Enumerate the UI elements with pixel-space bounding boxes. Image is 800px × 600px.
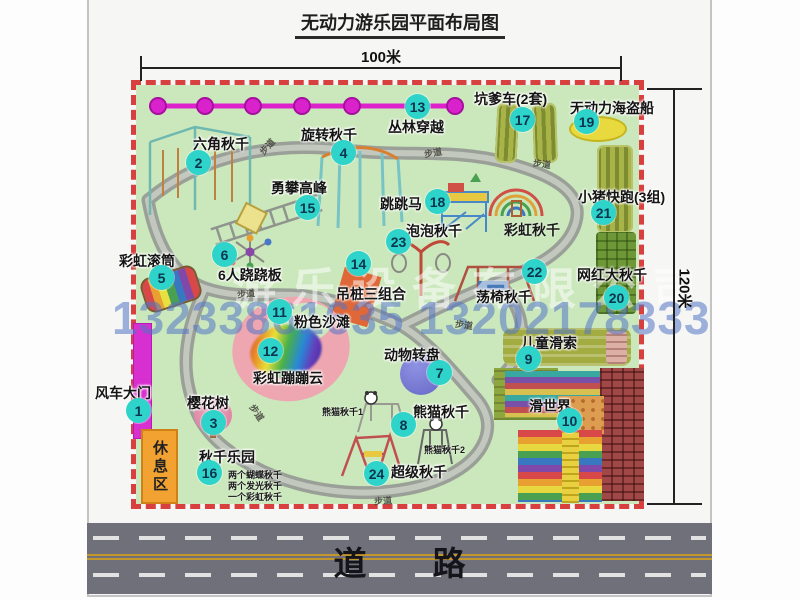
attraction-badge-17: 17 <box>510 107 535 132</box>
attraction-label-22: 荡椅秋千 <box>476 287 532 307</box>
attraction-badge-7: 7 <box>427 360 452 385</box>
slide-world-rainbow-slide <box>518 430 602 502</box>
extra-label-6: 一个彩虹秋千 <box>228 490 282 503</box>
attraction-badge-8: 8 <box>391 412 416 437</box>
attraction-badge-21: 21 <box>591 200 616 225</box>
dimension-label-height: 120米 <box>675 259 696 319</box>
attraction-label-21: 小猪快跑(3组) <box>578 187 665 207</box>
attraction-badge-22: 22 <box>522 259 547 284</box>
attraction-label-14: 吊桩三组合 <box>336 284 406 304</box>
attraction-badge-12: 12 <box>258 338 283 363</box>
attraction-badge-15: 15 <box>295 195 320 220</box>
kengdie-car-strip-2 <box>532 103 558 164</box>
park-layout-page: 无动力游乐园平面布局图 100米 120米 <box>0 0 800 600</box>
attraction-label-18: 跳跳马 <box>380 194 422 214</box>
slide-world-ladder <box>562 432 579 503</box>
attraction-label-24: 超级秋千 <box>391 462 447 482</box>
attraction-label-23: 泡泡秋千 <box>406 221 462 241</box>
attraction-badge-6: 6 <box>212 242 237 267</box>
footpath-label-4: 步道 <box>236 286 255 301</box>
attraction-badge-9: 9 <box>516 346 541 371</box>
attraction-label-20: 网红大秋千 <box>577 265 647 285</box>
road: 道 路 <box>87 523 712 594</box>
attraction-badge-14: 14 <box>346 251 371 276</box>
page-title-text: 无动力游乐园平面布局图 <box>295 13 505 39</box>
attraction-label-13: 丛林穿越 <box>388 117 444 137</box>
attraction-label-11: 粉色沙滩 <box>294 312 350 332</box>
road-label: 道 路 <box>87 537 712 585</box>
attraction-badge-20: 20 <box>604 285 629 310</box>
slide-world-tower <box>600 368 644 501</box>
attraction-badge-3: 3 <box>201 410 226 435</box>
footpath-label-6: 步道 <box>454 317 474 332</box>
footpath-label-7: 步道 <box>374 493 393 507</box>
attraction-label-8: 熊猫秋千 <box>413 402 469 422</box>
attraction-badge-4: 4 <box>331 140 356 165</box>
page-title: 无动力游乐园平面布局图 <box>0 9 800 35</box>
attraction-badge-18: 18 <box>425 189 450 214</box>
footpath-label-3: 步道 <box>532 156 552 171</box>
dimension-label-width: 100米 <box>140 46 622 67</box>
attraction-badge-10: 10 <box>557 408 582 433</box>
rest-area: 休息区 <box>141 429 178 504</box>
attraction-badge-13: 13 <box>405 94 430 119</box>
attraction-badge-23: 23 <box>386 229 411 254</box>
attraction-label-12: 彩虹蹦蹦云 <box>253 368 323 388</box>
attraction-badge-2: 2 <box>186 150 211 175</box>
attraction-label-17: 坑爹车(2套) <box>474 89 547 109</box>
attraction-badge-16: 16 <box>197 460 222 485</box>
attraction-badge-24: 24 <box>364 461 389 486</box>
extra-label-3: 熊猫秋千2 <box>424 443 465 456</box>
attraction-badge-5: 5 <box>149 265 174 290</box>
attraction-label-6: 6人跷跷板 <box>218 265 282 285</box>
attraction-badge-19: 19 <box>574 109 599 134</box>
rest-area-label: 休息区 <box>149 440 170 494</box>
dimension-line-top <box>140 67 622 69</box>
attraction-label-15: 勇攀高峰 <box>271 178 327 198</box>
extra-label-2: 熊猫秋千1 <box>322 405 363 418</box>
attraction-badge-1: 1 <box>126 398 151 423</box>
extra-label-1: 彩虹秋千 <box>504 220 560 240</box>
children-zipline-platform <box>606 331 627 364</box>
attraction-badge-11: 11 <box>267 299 292 324</box>
